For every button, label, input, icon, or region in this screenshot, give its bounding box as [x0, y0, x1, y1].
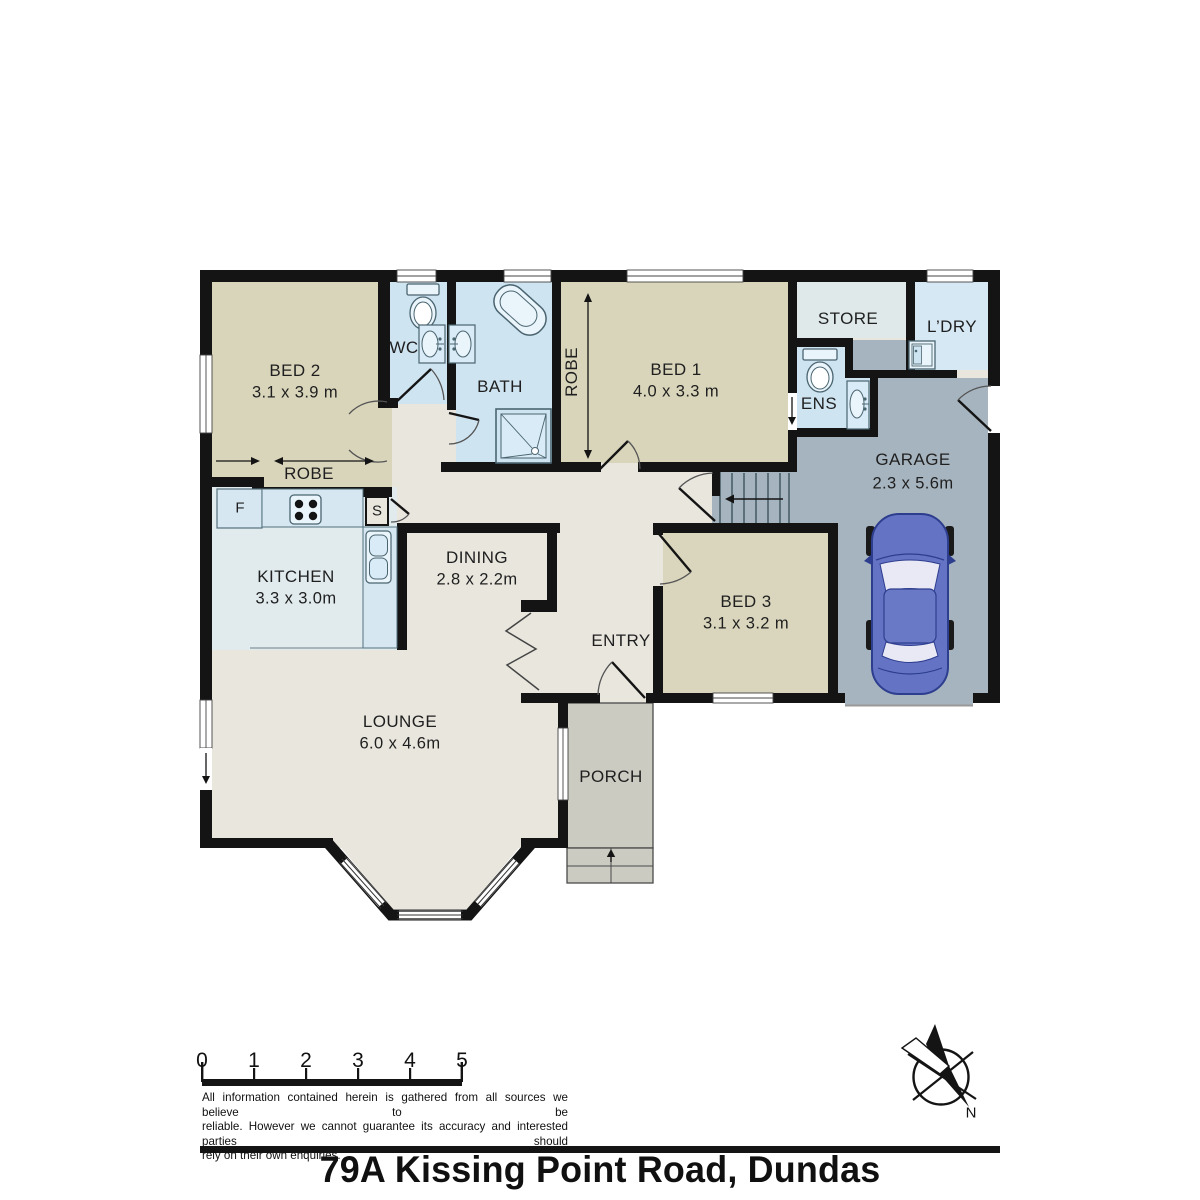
fridge-label: F: [235, 500, 244, 517]
room-label-laundry: L’DRY: [927, 317, 977, 337]
room-label-lounge: LOUNGE: [363, 712, 437, 732]
scale-tick-5: 5: [456, 1049, 468, 1073]
room-label-kitchen: KITCHEN: [257, 567, 334, 587]
room-label-bed3: BED 3: [720, 592, 771, 612]
room-label-store: STORE: [818, 309, 878, 329]
room-label-bath: BATH: [477, 377, 523, 397]
room-dims-dining: 2.8 x 2.2m: [436, 571, 517, 590]
disclaimer-line-1: All information contained herein is gath…: [202, 1091, 568, 1120]
bath-basin-icon: [449, 325, 475, 363]
compass-icon: [902, 1024, 976, 1107]
room-label-entry: ENTRY: [591, 631, 650, 651]
scale-tick-3: 3: [352, 1049, 364, 1073]
room-label-garage: GARAGE: [875, 450, 950, 470]
floorplan-drawing: [0, 0, 1200, 1200]
scale-tick-2: 2: [300, 1049, 312, 1073]
ens-basin-icon: [847, 381, 869, 429]
room-label-robe-bed2: ROBE: [284, 464, 334, 484]
room-label-porch: PORCH: [579, 767, 642, 787]
page-title: 79A Kissing Point Road, Dundas: [320, 1149, 881, 1191]
porch-structure: [567, 703, 653, 883]
floorplan-page: BED 2 3.1 x 3.9 m ROBE WC BATH ROBE BED …: [0, 0, 1200, 1200]
washing-machine-icon: [909, 341, 935, 369]
scale-bar: [201, 1062, 463, 1086]
room-dims-garage: 2.3 x 5.6m: [872, 475, 953, 494]
scale-tick-0: 0: [196, 1049, 208, 1073]
room-dims-lounge: 6.0 x 4.6m: [359, 735, 440, 754]
wc-basin-icon: [419, 325, 445, 363]
room-label-bed1: BED 1: [650, 360, 701, 380]
room-label-ens: ENS: [801, 394, 837, 414]
room-label-robe-main: ROBE: [562, 347, 582, 397]
stove-icon: [290, 495, 321, 524]
room-label-dining: DINING: [446, 548, 508, 568]
room-dims-bed2: 3.1 x 3.9 m: [252, 384, 338, 403]
room-dims-kitchen: 3.3 x 3.0m: [255, 590, 336, 609]
room-label-wc: WC: [389, 338, 418, 358]
shower-icon: [496, 409, 551, 463]
kitchen-sink-icon: [366, 531, 391, 583]
compass-north-label: N: [966, 1105, 977, 1122]
room-dims-bed3: 3.1 x 3.2 m: [703, 615, 789, 634]
scale-tick-1: 1: [248, 1049, 260, 1073]
scale-tick-4: 4: [404, 1049, 416, 1073]
car-icon: [864, 514, 956, 694]
cupboard-label: S: [372, 503, 382, 520]
room-dims-bed1: 4.0 x 3.3 m: [633, 383, 719, 402]
disclaimer-line-2: reliable. However we cannot guarantee it…: [202, 1120, 568, 1149]
wc-toilet-icon: [407, 284, 439, 329]
room-label-bed2: BED 2: [269, 361, 320, 381]
